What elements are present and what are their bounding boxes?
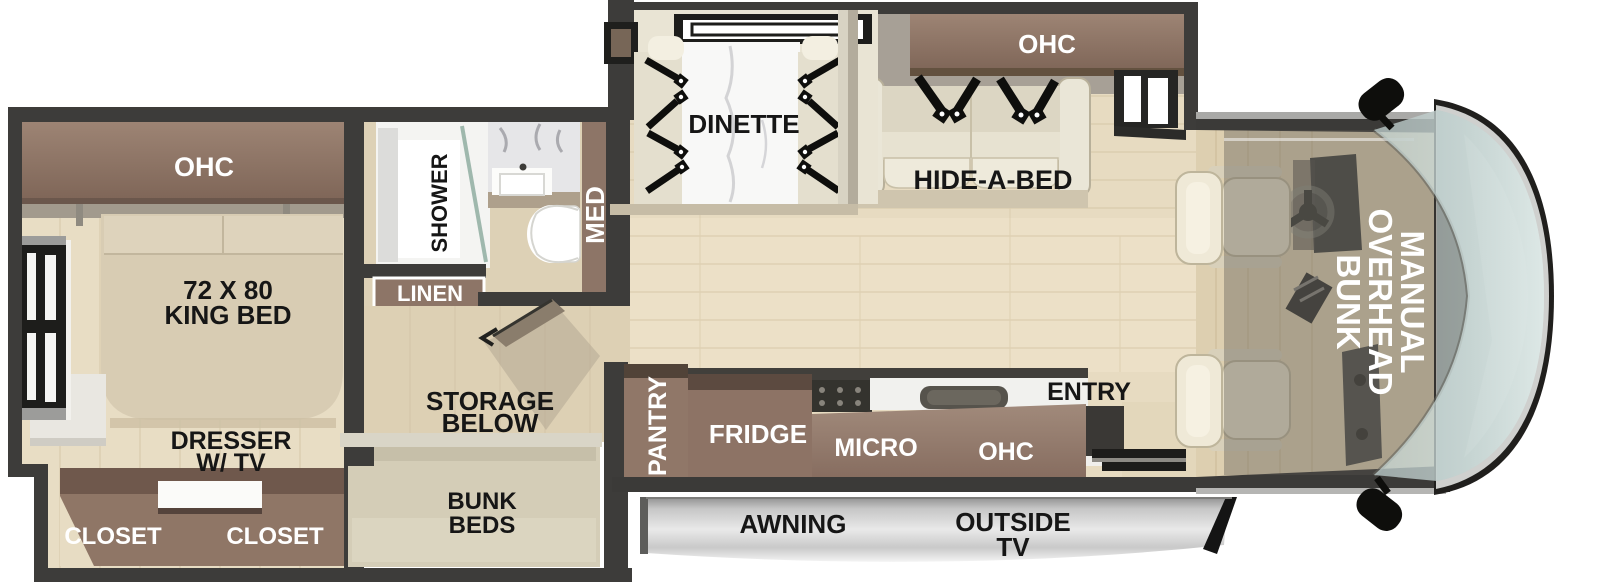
svg-text:BEDS: BEDS — [449, 512, 516, 539]
svg-text:AWNING: AWNING — [740, 509, 847, 539]
svg-text:W/ TV: W/ TV — [196, 449, 266, 477]
svg-text:HIDE-A-BED: HIDE-A-BED — [914, 165, 1073, 195]
svg-text:TV: TV — [996, 532, 1030, 562]
svg-text:OHC: OHC — [1018, 29, 1076, 59]
svg-text:CLOSET: CLOSET — [64, 523, 162, 550]
svg-text:CLOSET: CLOSET — [226, 523, 324, 550]
svg-text:KING BED: KING BED — [164, 300, 291, 330]
svg-text:SHOWER: SHOWER — [427, 153, 452, 252]
svg-text:MED: MED — [580, 186, 610, 244]
svg-text:BUNK: BUNK — [1330, 254, 1367, 349]
svg-text:PANTRY: PANTRY — [644, 376, 672, 476]
svg-text:LINEN: LINEN — [397, 281, 463, 306]
svg-text:OHC: OHC — [978, 438, 1034, 466]
svg-text:OHC: OHC — [174, 152, 234, 182]
svg-text:DINETTE: DINETTE — [688, 109, 799, 139]
svg-text:MICRO: MICRO — [834, 434, 917, 462]
svg-text:BUNK: BUNK — [447, 488, 517, 515]
svg-text:FRIDGE: FRIDGE — [709, 419, 807, 449]
svg-text:ENTRY: ENTRY — [1047, 378, 1131, 406]
